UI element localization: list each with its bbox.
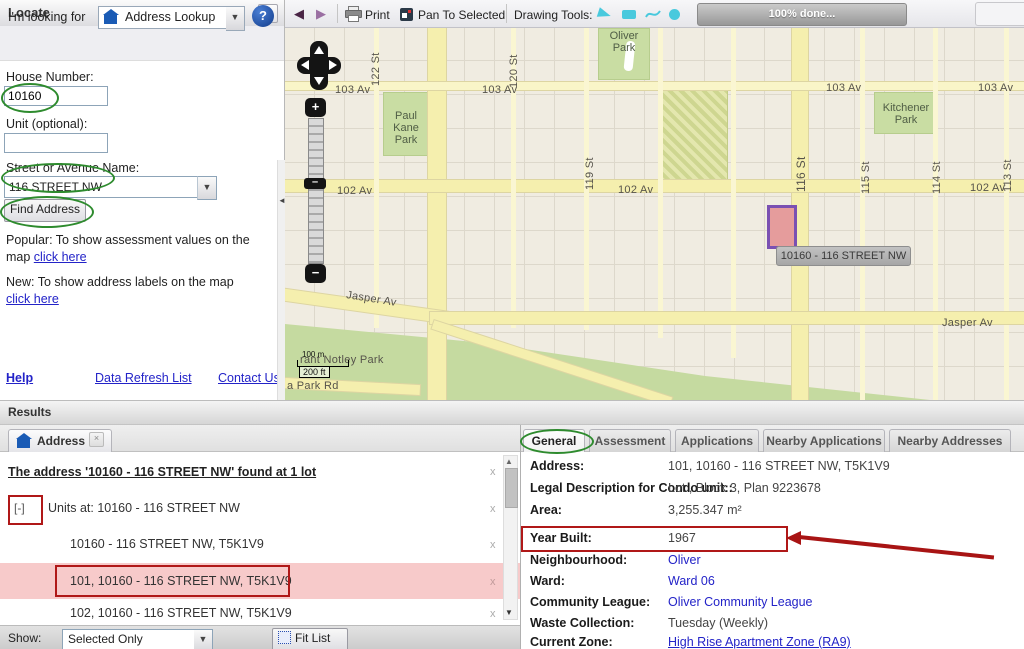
- unit-input[interactable]: [4, 133, 108, 153]
- toolbar-separator-2: [506, 4, 507, 23]
- address-tab-house-icon: [17, 439, 30, 448]
- scrollbar-up-icon[interactable]: ▲: [505, 457, 513, 466]
- unit-label: Unit (optional):: [6, 117, 87, 131]
- zoom-slider-track[interactable]: [308, 118, 324, 264]
- new-text-body: New: To show address labels on the map: [6, 275, 234, 289]
- parcel-tooltip: 10160 - 116 STREET NW: [776, 246, 911, 266]
- popular-text: Popular: To show assessment values on th…: [6, 232, 254, 266]
- annotation-circle-street: [1, 163, 115, 193]
- show-filter-value: Selected Only: [68, 632, 143, 646]
- scale-label-metric: 100 m: [302, 350, 324, 359]
- park-label-kitchener: Kitchener Park: [879, 102, 933, 126]
- annotation-box-year-built: [521, 526, 788, 552]
- toolbar-separator: [337, 4, 338, 23]
- print-button[interactable]: Print: [365, 8, 390, 22]
- drawing-tools-label: Drawing Tools:: [514, 8, 592, 22]
- map-toolbar: ◀ ▶ Print Pan To Selected Drawing Tools:…: [285, 0, 1024, 28]
- list-item[interactable]: 102, 10160 - 116 STREET NW, T5K1V9: [70, 606, 292, 620]
- road-102-av: [285, 180, 1024, 192]
- data-refresh-link[interactable]: Data Refresh List: [95, 371, 192, 385]
- lookup-type-select[interactable]: Address Lookup: [98, 6, 228, 29]
- toolbar-right-button[interactable]: [975, 2, 1024, 26]
- map-label: 120 St: [508, 54, 520, 88]
- show-filter-dropdown-arrow[interactable]: ▼: [194, 629, 213, 649]
- zoom-slider-thumb[interactable]: –: [304, 178, 326, 189]
- show-label: Show:: [8, 631, 41, 645]
- tab-applications[interactable]: Applications: [675, 429, 759, 452]
- annotation-box-collapse-toggle: [8, 495, 43, 525]
- annotation-circle-house-number: [1, 83, 59, 113]
- tab-nearby-applications[interactable]: Nearby Applications: [763, 429, 885, 452]
- map-label: 114 St: [931, 161, 943, 194]
- park-hatched-block: [660, 90, 728, 182]
- progress-text: 100% done...: [698, 4, 906, 25]
- new-text: New: To show address labels on the map c…: [6, 274, 254, 308]
- scrollbar-thumb[interactable]: [505, 468, 518, 508]
- map-label: 102 Av: [337, 185, 372, 197]
- detail-label: Neighbourhood:: [530, 553, 627, 567]
- selected-parcel[interactable]: [767, 205, 797, 249]
- pan-up-icon[interactable]: [314, 46, 324, 54]
- detail-link-neighbourhood[interactable]: Oliver: [668, 553, 701, 567]
- pan-to-selected-icon[interactable]: [400, 8, 413, 21]
- detail-value-area: 3,255.347 m²: [668, 503, 742, 517]
- road-114-st: [933, 28, 938, 400]
- forward-arrow-button[interactable]: ▶: [316, 6, 326, 22]
- looking-for-row: [0, 26, 284, 61]
- close-result-icon[interactable]: x: [490, 539, 496, 551]
- help-icon[interactable]: ?: [252, 5, 274, 27]
- map-label: 103 Av: [826, 82, 861, 94]
- progress-bar: 100% done...: [697, 3, 907, 26]
- detail-label: Area:: [530, 503, 562, 517]
- popular-click-here-link[interactable]: click here: [34, 250, 87, 264]
- results-title: Results: [8, 405, 51, 419]
- address-tab-close-icon[interactable]: ×: [89, 432, 104, 447]
- draw-rectangle-icon[interactable]: [622, 10, 636, 19]
- map-canvas[interactable]: 103 Av 103 Av 103 Av 103 Av 102 Av 102 A…: [285, 28, 1024, 400]
- tab-nearby-addresses[interactable]: Nearby Addresses: [889, 429, 1011, 452]
- zoom-in-button[interactable]: +: [305, 98, 326, 117]
- road-103-av: [285, 82, 1024, 90]
- detail-label: Community League:: [530, 595, 650, 609]
- detail-label: Ward:: [530, 574, 565, 588]
- pan-left-icon[interactable]: [301, 60, 309, 70]
- results-header-bar: [0, 400, 1024, 425]
- back-arrow-button[interactable]: ◀: [294, 6, 304, 22]
- close-result-icon[interactable]: x: [490, 466, 496, 478]
- tab-address[interactable]: Address ×: [8, 429, 112, 453]
- annotation-box-selected-unit: [55, 565, 290, 597]
- road-118-st: [658, 28, 663, 338]
- list-item[interactable]: 10160 - 116 STREET NW, T5K1V9: [70, 537, 264, 551]
- map-label: 115 St: [860, 161, 872, 194]
- map-label: 103 Av: [335, 84, 370, 96]
- show-filter-select[interactable]: Selected Only: [62, 629, 201, 649]
- close-result-icon[interactable]: x: [490, 503, 496, 515]
- new-click-here-link[interactable]: click here: [6, 292, 59, 306]
- map-label: 102 Av: [618, 184, 653, 196]
- road-jasper-east: [430, 312, 1024, 324]
- lookup-dropdown-arrow[interactable]: ▼: [226, 6, 245, 31]
- zoom-out-button[interactable]: −: [305, 264, 326, 283]
- park-label-paul-kane: Paul Kane Park: [385, 110, 427, 146]
- close-result-icon[interactable]: x: [490, 608, 496, 620]
- detail-link-ward[interactable]: Ward 06: [668, 574, 715, 588]
- house-number-label: House Number:: [6, 70, 94, 84]
- tab-assessment[interactable]: Assessment: [589, 429, 671, 452]
- detail-value-waste: Tuesday (Weekly): [668, 616, 768, 630]
- units-at-row[interactable]: Units at: 10160 - 116 STREET NW: [48, 501, 240, 515]
- map-label: 113 St: [1002, 159, 1014, 192]
- map-label: Jasper Av: [942, 317, 993, 329]
- annotation-circle-general-tab: [520, 429, 594, 454]
- pan-to-selected-button[interactable]: Pan To Selected: [418, 8, 505, 22]
- print-icon[interactable]: [345, 6, 361, 21]
- map-label: 116 St: [794, 156, 808, 192]
- draw-polyline-icon[interactable]: [645, 8, 661, 20]
- fit-list-icon: [278, 631, 291, 644]
- detail-link-community-league[interactable]: Oliver Community League: [668, 595, 813, 609]
- pan-right-icon[interactable]: [329, 60, 337, 70]
- street-dropdown-arrow[interactable]: ▼: [197, 176, 217, 200]
- close-result-icon[interactable]: x: [490, 576, 496, 588]
- pan-down-icon[interactable]: [314, 77, 324, 85]
- detail-value-legal: Lot , Block 3, Plan 9223678: [668, 481, 821, 495]
- app-window: Locate « I'm looking for Address Lookup …: [0, 0, 1024, 649]
- looking-for-label: I'm looking for: [8, 10, 85, 24]
- park-label-oliver: Oliver Park: [601, 30, 647, 54]
- lookup-type-value: Address Lookup: [125, 10, 215, 24]
- fit-list-button[interactable]: Fit List: [272, 628, 348, 649]
- draw-pointer-icon[interactable]: [597, 7, 612, 21]
- scrollbar-down-icon[interactable]: ▼: [505, 608, 513, 617]
- map-label: 119 St: [584, 157, 596, 190]
- detail-label: Current Zone:: [530, 635, 613, 649]
- detail-label: Waste Collection:: [530, 616, 634, 630]
- detail-label: Address:: [530, 459, 584, 473]
- contact-us-link[interactable]: Contact Us: [218, 371, 280, 385]
- road-117-st: [731, 28, 736, 358]
- annotation-arrow-head: [786, 531, 801, 545]
- road-label-park-rd: a Park Rd: [287, 380, 339, 392]
- fit-list-label: Fit List: [295, 631, 330, 645]
- address-tab-label: Address: [37, 434, 85, 448]
- map-label: 103 Av: [978, 82, 1013, 94]
- annotation-circle-find-address: [0, 196, 94, 228]
- scale-label-imperial: 200 ft: [299, 366, 330, 378]
- detail-value-address: 101, 10160 - 116 STREET NW, T5K1V9: [668, 459, 890, 473]
- house-icon: [104, 15, 117, 24]
- draw-ellipse-icon[interactable]: [669, 9, 680, 20]
- map-label: 102 Av: [970, 182, 1005, 194]
- map-label: 122 St: [370, 52, 382, 86]
- detail-link-current-zone[interactable]: High Rise Apartment Zone (RA9): [668, 635, 851, 649]
- help-link[interactable]: Help: [6, 371, 33, 385]
- result-summary[interactable]: The address '10160 - 116 STREET NW' foun…: [8, 465, 316, 479]
